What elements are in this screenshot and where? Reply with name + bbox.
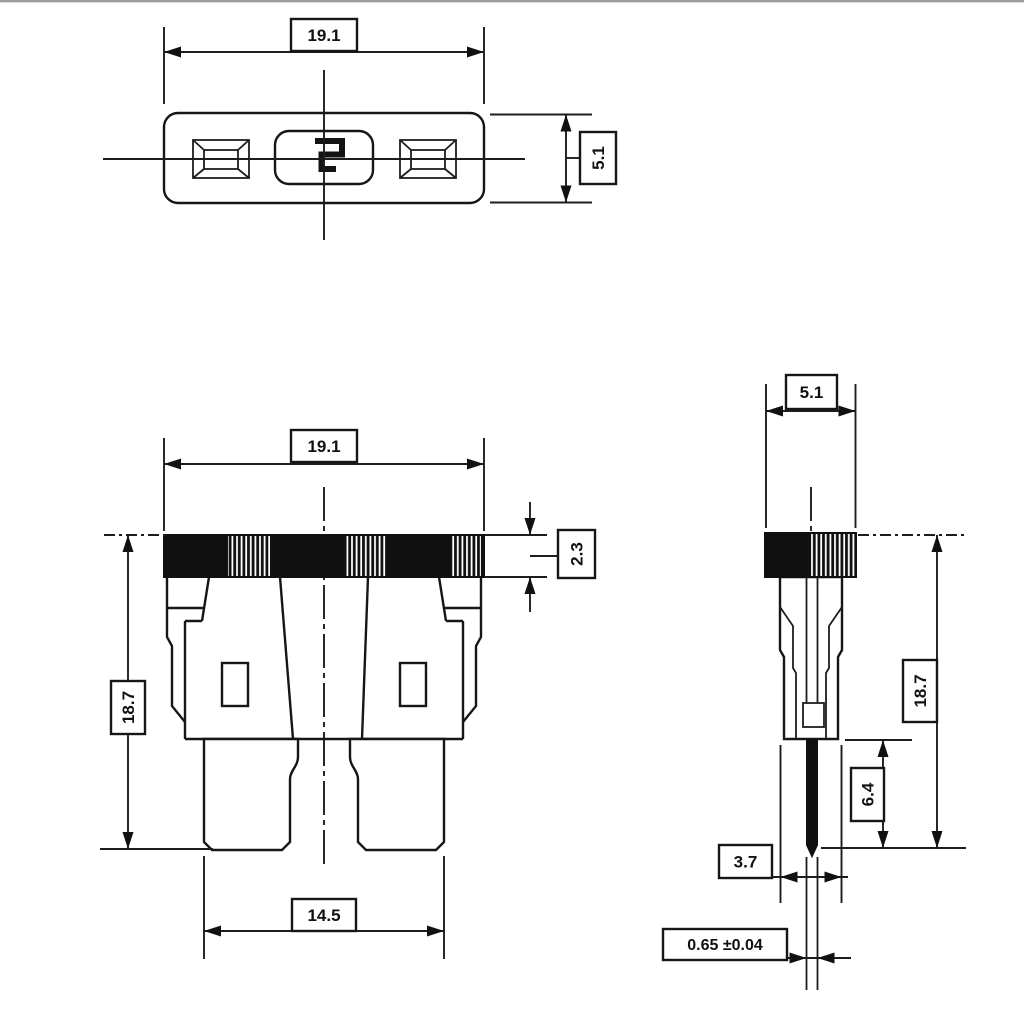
- front-right-blade: [350, 739, 444, 850]
- top-view: 19.1 5.1: [103, 19, 616, 240]
- dim-label-front-terminal-span: 14.5: [307, 906, 340, 925]
- dim-label-side-terminal-length: 6.4: [858, 782, 877, 806]
- dim-side-body-thickness: 3.7: [719, 745, 848, 903]
- front-view-cap-band: [164, 535, 484, 577]
- dim-label-front-width: 19.1: [307, 437, 340, 456]
- front-right-latch-window: [400, 663, 426, 706]
- dim-label-front-cap-height: 2.3: [567, 542, 586, 566]
- dim-side-terminal-length: 6.4: [845, 740, 912, 848]
- dim-front-cap-height: 2.3: [485, 502, 595, 612]
- technical-drawing-page: 19.1 5.1: [0, 0, 1024, 1024]
- front-left-blade: [204, 739, 298, 850]
- dim-label-top-depth: 5.1: [589, 146, 608, 170]
- fuse-drawing-svg: 19.1 5.1: [0, 0, 1024, 1024]
- side-view-housing: [780, 577, 842, 739]
- dim-front-terminal-span: 14.5: [204, 856, 444, 959]
- side-view: 5.1 18.7 6.4 3.7: [663, 375, 966, 990]
- side-view-blade: [807, 739, 818, 990]
- side-view-cap-band: [765, 533, 856, 577]
- dim-label-front-height: 18.7: [119, 691, 138, 724]
- scan-top-border: [0, 0, 1024, 2]
- dim-label-side-body-thickness: 3.7: [734, 852, 758, 871]
- front-left-latch-window: [222, 663, 248, 706]
- dim-front-height: 18.7: [100, 535, 213, 849]
- dim-label-side-blade-thickness: 0.65 ±0.04: [687, 937, 763, 954]
- front-view: 19.1 18.7 2.3 1: [100, 430, 595, 959]
- dim-label-side-height: 18.7: [911, 674, 930, 707]
- dim-label-top-width: 19.1: [307, 26, 340, 45]
- dim-side-blade-thickness: 0.65 ±0.04: [663, 929, 851, 964]
- dim-label-side-depth: 5.1: [800, 383, 824, 402]
